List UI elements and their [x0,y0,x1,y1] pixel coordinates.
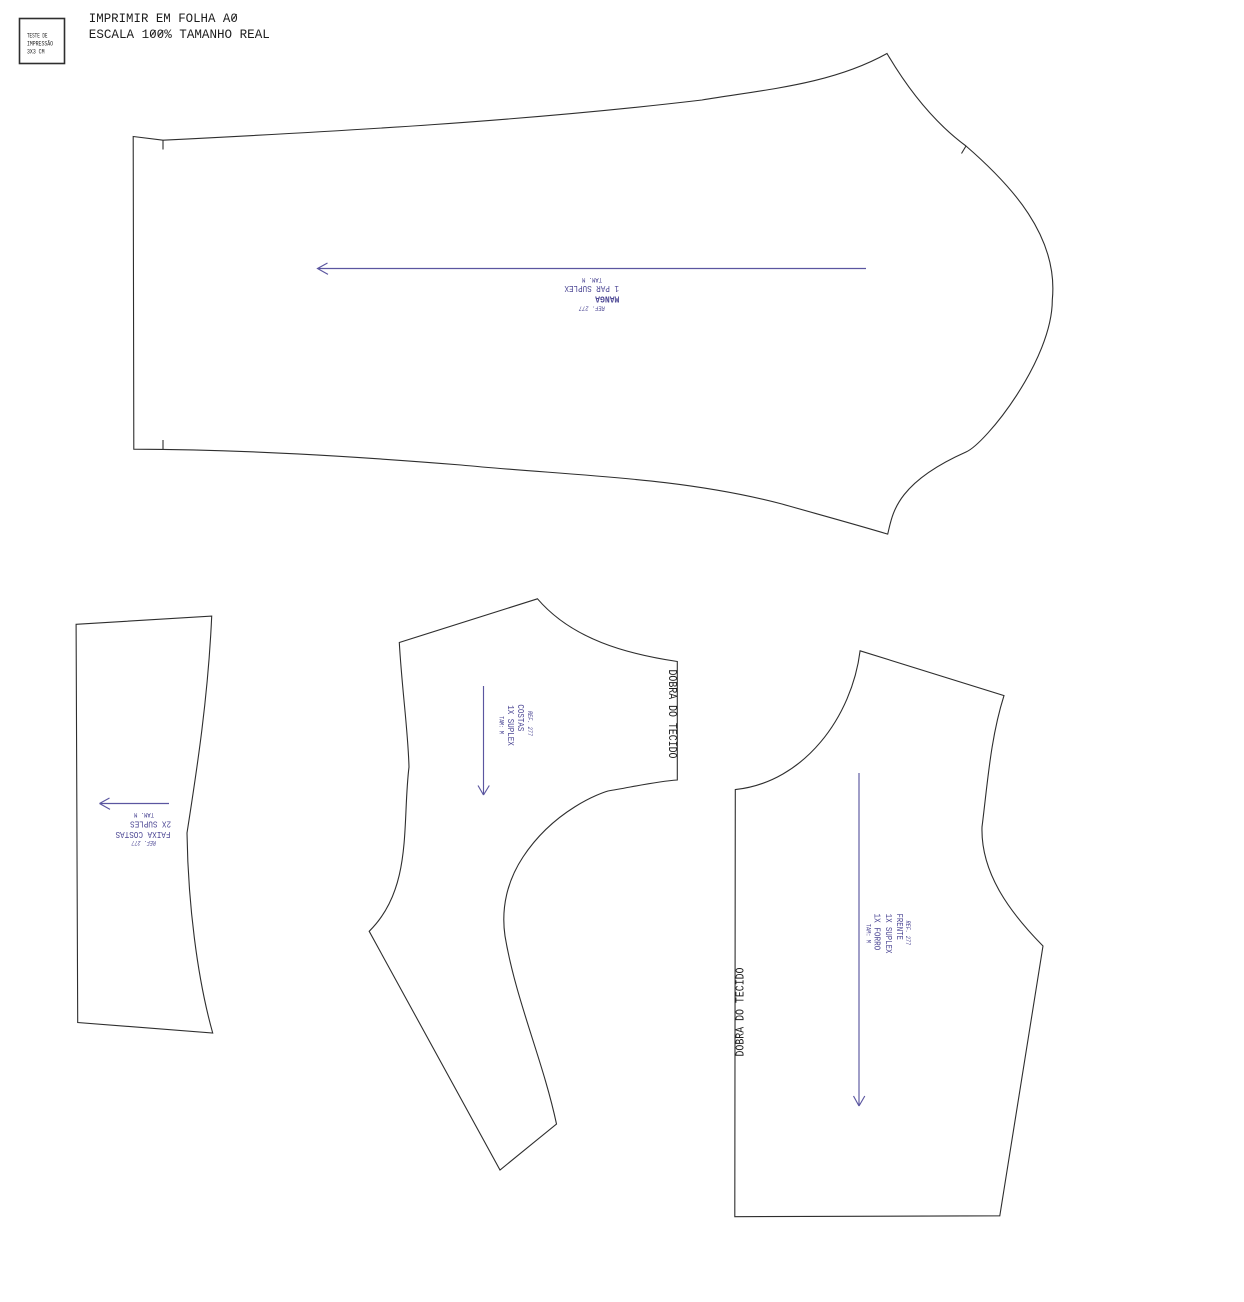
svg-text:REF. 277: REF. 277 [131,839,156,846]
svg-text:TESTE DE: TESTE DE [27,33,48,40]
svg-text:TAM. M: TAM. M [134,811,154,818]
svg-text:TAM: M: TAM: M [865,924,872,943]
svg-text:TAM. M: TAM. M [582,276,602,283]
svg-text:1 PAR SUPLEX: 1 PAR SUPLEX [564,283,619,294]
svg-text:REF. 277: REF. 277 [579,304,605,311]
svg-text:3X3 CM: 3X3 CM [27,49,45,56]
svg-text:ESCALA 100% TAMANHO REAL: ESCALA 100% TAMANHO REAL [89,28,270,42]
svg-text:1X SUPLEX: 1X SUPLEX [505,705,516,746]
svg-text:1X FORRO: 1X FORRO [871,914,882,951]
svg-text:IMPRESSÃO: IMPRESSÃO [27,40,53,48]
svg-text:DOBRA DO TECIDO: DOBRA DO TECIDO [665,670,679,759]
svg-text:DOBRA DO TECIDO: DOBRA DO TECIDO [734,968,748,1057]
svg-text:MANGA: MANGA [595,293,619,304]
svg-text:2X SUPLES: 2X SUPLES [130,819,171,830]
svg-text:REF. 277: REF. 277 [526,711,533,736]
svg-text:FRENTE: FRENTE [894,914,905,941]
svg-text:1X SUPLEX: 1X SUPLEX [883,914,894,954]
svg-text:TAM: M: TAM: M [497,716,504,734]
svg-text:IMPRIMIR EM FOLHA A0: IMPRIMIR EM FOLHA A0 [89,12,238,26]
svg-text:FAIXA COSTAS: FAIXA COSTAS [115,829,170,840]
